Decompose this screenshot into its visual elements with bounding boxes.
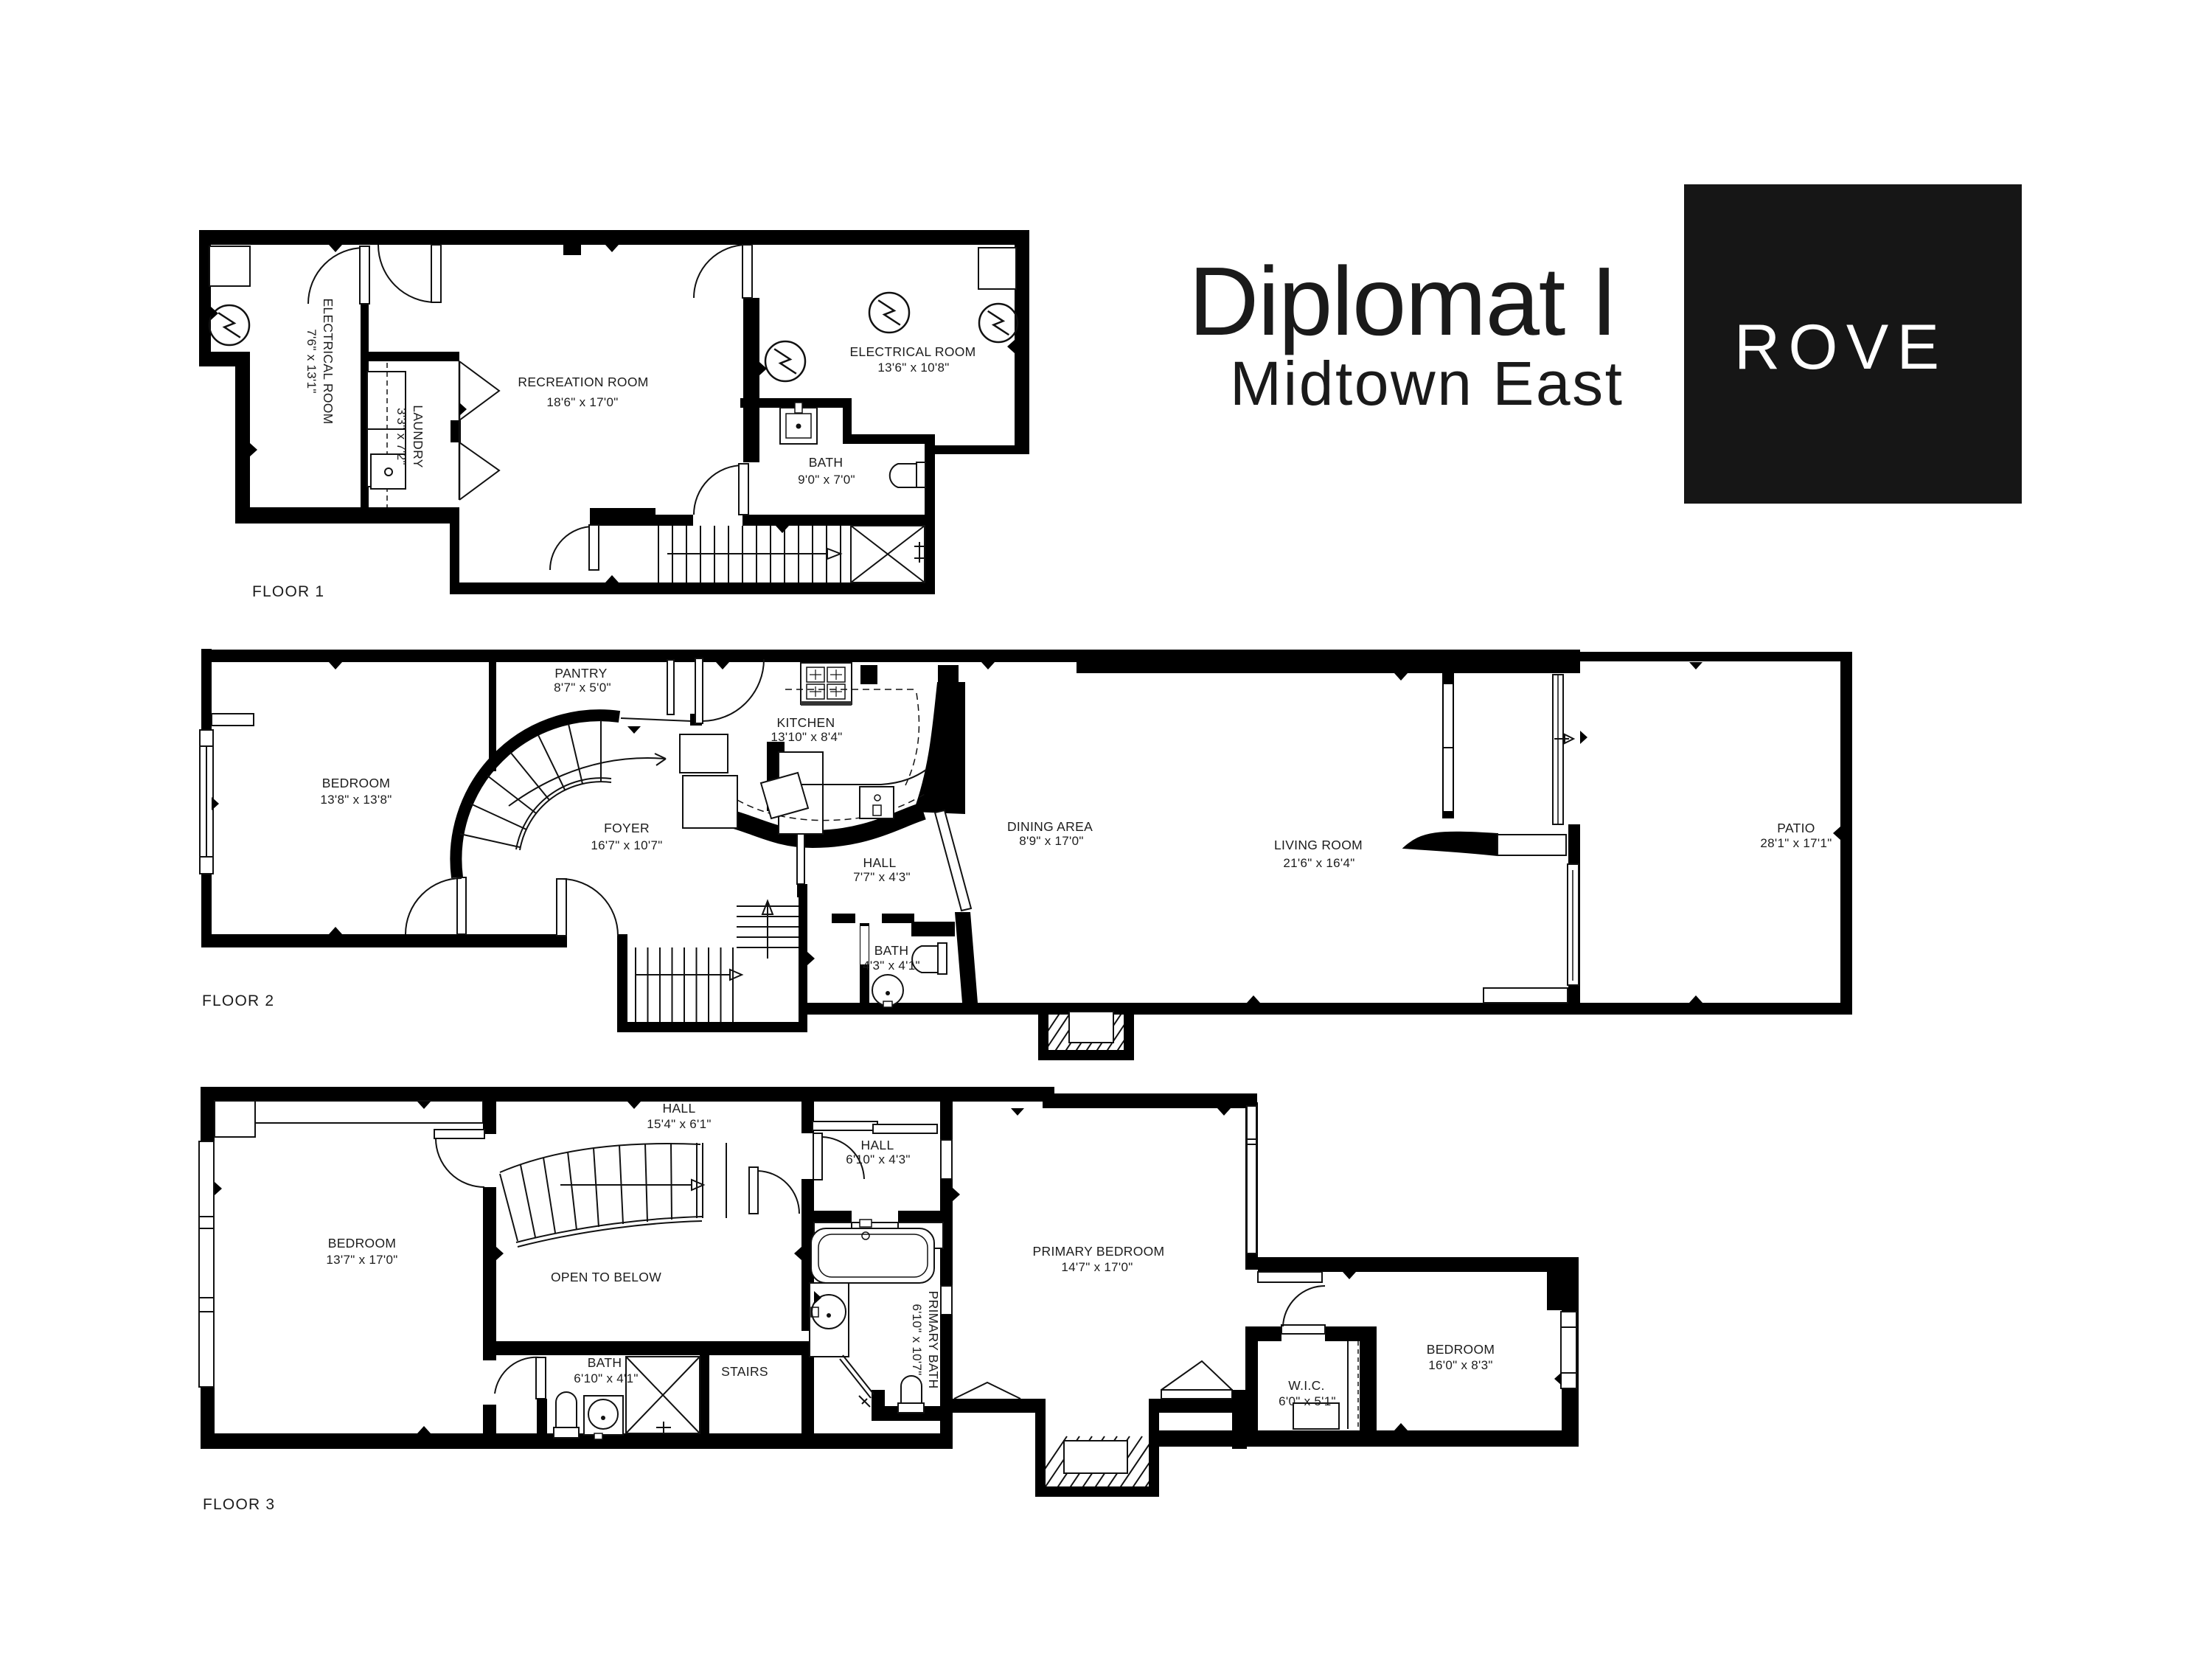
svg-text:HALL: HALL [861, 1138, 894, 1152]
svg-text:HALL: HALL [863, 855, 897, 870]
svg-text:W.I.C.: W.I.C. [1288, 1378, 1324, 1393]
svg-text:7'6" x 13'1": 7'6" x 13'1" [305, 329, 319, 393]
svg-text:4'3" x 4'1": 4'3" x 4'1" [863, 959, 920, 973]
svg-text:PATIO: PATIO [1777, 821, 1815, 835]
svg-text:KITCHEN: KITCHEN [777, 715, 835, 730]
svg-text:8'9" x 17'0": 8'9" x 17'0" [1019, 834, 1083, 848]
svg-text:FLOOR 1: FLOOR 1 [252, 583, 324, 600]
svg-text:Diplomat I: Diplomat I [1189, 247, 1618, 355]
svg-text:LIVING ROOM: LIVING ROOM [1274, 838, 1363, 852]
svg-text:PRIMARY BEDROOM: PRIMARY BEDROOM [1033, 1244, 1165, 1259]
svg-text:STAIRS: STAIRS [721, 1364, 768, 1379]
svg-text:BEDROOM: BEDROOM [328, 1236, 397, 1251]
svg-text:28'1" x 17'1": 28'1" x 17'1" [1760, 836, 1832, 850]
svg-text:BATH: BATH [809, 455, 844, 470]
svg-text:13'10" x 8'4": 13'10" x 8'4" [771, 730, 842, 744]
svg-text:7'7" x 4'3": 7'7" x 4'3" [853, 870, 911, 884]
svg-text:Midtown East: Midtown East [1230, 349, 1622, 418]
svg-text:6'0" x 5'1": 6'0" x 5'1" [1279, 1394, 1336, 1408]
svg-text:OPEN TO BELOW: OPEN TO BELOW [551, 1270, 661, 1284]
svg-text:FLOOR 3: FLOOR 3 [203, 1496, 275, 1513]
svg-text:ELECTRICAL ROOM: ELECTRICAL ROOM [321, 298, 335, 424]
svg-text:6'10" x 4'3": 6'10" x 4'3" [846, 1152, 910, 1166]
svg-text:DINING AREA: DINING AREA [1007, 819, 1093, 834]
svg-text:18'6" x 17'0": 18'6" x 17'0" [546, 395, 618, 409]
svg-text:13'8" x 13'8": 13'8" x 13'8" [320, 793, 392, 807]
svg-text:BATH: BATH [874, 943, 909, 958]
svg-text:8'7" x 5'0": 8'7" x 5'0" [554, 681, 611, 695]
svg-text:9'0" x 7'0": 9'0" x 7'0" [798, 473, 855, 487]
svg-text:PRIMARY BATH: PRIMARY BATH [926, 1291, 941, 1389]
svg-text:13'7" x 17'0": 13'7" x 17'0" [326, 1253, 397, 1267]
svg-text:3'3" x 7'2": 3'3" x 7'2" [394, 408, 408, 465]
svg-text:FOYER: FOYER [604, 821, 650, 835]
svg-text:FLOOR 2: FLOOR 2 [202, 992, 274, 1009]
svg-text:BATH: BATH [588, 1355, 622, 1370]
svg-text:BEDROOM: BEDROOM [1427, 1342, 1495, 1357]
svg-text:21'6" x 16'4": 21'6" x 16'4" [1283, 856, 1354, 870]
svg-text:RECREATION ROOM: RECREATION ROOM [518, 375, 648, 389]
svg-text:16'0" x 8'3": 16'0" x 8'3" [1428, 1358, 1492, 1372]
svg-text:ROVE: ROVE [1734, 312, 1964, 383]
svg-text:16'7" x 10'7": 16'7" x 10'7" [591, 838, 662, 852]
svg-text:PANTRY: PANTRY [554, 666, 607, 681]
svg-text:13'6" x 10'8": 13'6" x 10'8" [877, 361, 949, 375]
svg-text:LAUNDRY: LAUNDRY [411, 405, 425, 467]
svg-text:ELECTRICAL ROOM: ELECTRICAL ROOM [849, 344, 975, 359]
svg-text:HALL: HALL [663, 1101, 696, 1116]
svg-text:6'10" x 10'7": 6'10" x 10'7" [910, 1304, 924, 1375]
svg-text:6'10" x 4'1": 6'10" x 4'1" [574, 1371, 638, 1385]
svg-text:14'7" x 17'0": 14'7" x 17'0" [1061, 1260, 1133, 1274]
svg-text:BEDROOM: BEDROOM [322, 776, 391, 790]
svg-text:15'4" x 6'1": 15'4" x 6'1" [647, 1117, 711, 1131]
